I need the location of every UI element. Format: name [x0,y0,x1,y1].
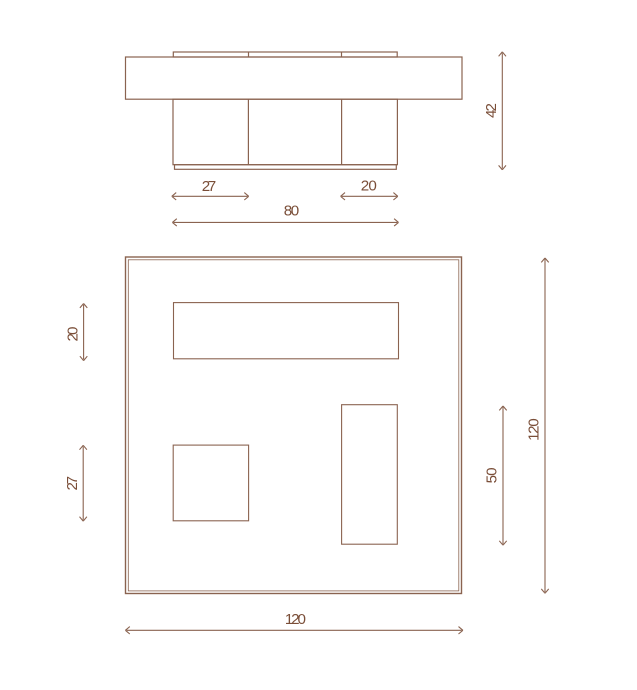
svg-text:20: 20 [361,177,377,194]
svg-text:120: 120 [285,611,306,628]
svg-text:50: 50 [484,467,501,483]
svg-text:27: 27 [64,476,81,491]
svg-text:80: 80 [284,203,300,220]
svg-text:20: 20 [64,327,81,342]
svg-text:120: 120 [526,418,543,441]
svg-text:42: 42 [483,103,500,118]
svg-text:27: 27 [202,178,217,195]
